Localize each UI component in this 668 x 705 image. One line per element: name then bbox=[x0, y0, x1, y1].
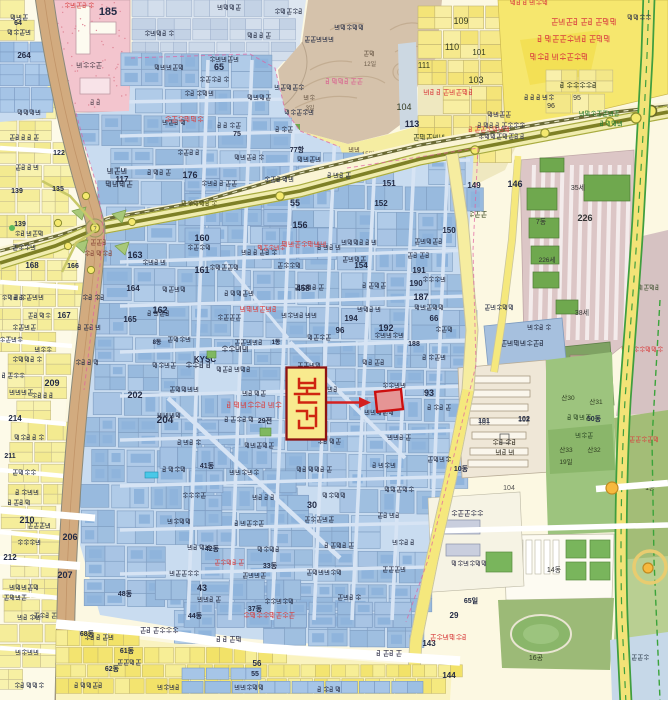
svg-text:48동: 48동 bbox=[118, 590, 133, 598]
svg-text:29전: 29전 bbox=[258, 416, 272, 425]
svg-text:93: 93 bbox=[424, 388, 434, 398]
svg-text:188: 188 bbox=[408, 341, 420, 348]
svg-text:55: 55 bbox=[290, 198, 300, 208]
svg-text:166: 166 bbox=[67, 263, 79, 270]
svg-text:35세: 35세 bbox=[571, 183, 585, 192]
svg-text:62동: 62동 bbox=[105, 665, 120, 673]
svg-text:77항: 77항 bbox=[290, 145, 305, 154]
svg-text:122: 122 bbox=[53, 150, 65, 157]
svg-text:264: 264 bbox=[17, 51, 31, 60]
svg-text:144: 144 bbox=[442, 671, 456, 680]
svg-text:104: 104 bbox=[503, 485, 515, 492]
svg-text:75: 75 bbox=[233, 131, 241, 138]
svg-text:33동: 33동 bbox=[263, 562, 278, 570]
svg-text:102: 102 bbox=[518, 416, 530, 423]
svg-text:55: 55 bbox=[251, 671, 259, 678]
svg-text:187: 187 bbox=[413, 292, 428, 302]
svg-text:202: 202 bbox=[127, 390, 142, 400]
svg-text:164: 164 bbox=[126, 284, 140, 293]
svg-text:226: 226 bbox=[577, 213, 592, 223]
svg-text:산30: 산30 bbox=[561, 393, 575, 402]
svg-text:64: 64 bbox=[14, 20, 22, 27]
svg-text:139: 139 bbox=[11, 188, 23, 195]
svg-text:204: 204 bbox=[157, 415, 174, 426]
svg-text:111: 111 bbox=[418, 61, 431, 70]
svg-text:206: 206 bbox=[62, 532, 77, 542]
svg-text:44동: 44동 bbox=[188, 612, 203, 620]
svg-text:산33: 산33 bbox=[559, 445, 573, 454]
svg-text:150: 150 bbox=[442, 226, 456, 235]
svg-text:211: 211 bbox=[4, 453, 15, 460]
svg-text:165: 165 bbox=[123, 315, 137, 324]
svg-text:185: 185 bbox=[99, 6, 117, 18]
svg-text:56: 56 bbox=[253, 659, 262, 668]
svg-text:50동: 50동 bbox=[587, 415, 602, 423]
svg-text:160: 160 bbox=[194, 233, 209, 243]
svg-text:109: 109 bbox=[453, 16, 468, 26]
svg-text:191: 191 bbox=[412, 266, 426, 275]
svg-text:146: 146 bbox=[507, 179, 522, 189]
svg-text:113: 113 bbox=[405, 119, 420, 129]
svg-text:149: 149 bbox=[467, 181, 481, 190]
svg-text:65일: 65일 bbox=[464, 596, 478, 605]
svg-text:194: 194 bbox=[344, 314, 358, 323]
svg-text:152: 152 bbox=[374, 199, 388, 208]
svg-text:66: 66 bbox=[430, 314, 439, 323]
svg-text:29: 29 bbox=[450, 611, 459, 620]
svg-text:192: 192 bbox=[378, 323, 393, 333]
svg-text:161: 161 bbox=[194, 265, 209, 275]
svg-text:12일: 12일 bbox=[364, 60, 376, 68]
svg-text:156: 156 bbox=[292, 220, 307, 230]
svg-text:30: 30 bbox=[307, 500, 317, 510]
svg-text:10동: 10동 bbox=[454, 465, 469, 473]
svg-text:214: 214 bbox=[8, 414, 22, 423]
svg-text:산32: 산32 bbox=[587, 445, 601, 454]
svg-text:139: 139 bbox=[14, 221, 26, 228]
svg-text:16공: 16공 bbox=[529, 654, 544, 662]
svg-text:61동: 61동 bbox=[120, 647, 135, 655]
svg-text:65: 65 bbox=[214, 62, 224, 72]
svg-text:110: 110 bbox=[445, 42, 459, 52]
svg-text:117: 117 bbox=[116, 175, 129, 184]
svg-text:95: 95 bbox=[573, 95, 581, 102]
svg-text:135: 135 bbox=[52, 186, 64, 193]
svg-text:43: 43 bbox=[197, 583, 207, 593]
svg-text:1동: 1동 bbox=[272, 338, 281, 346]
svg-text:14동: 14동 bbox=[547, 566, 562, 574]
svg-text:226세: 226세 bbox=[539, 255, 556, 264]
svg-text:168: 168 bbox=[25, 261, 39, 270]
svg-text:101: 101 bbox=[472, 48, 486, 57]
svg-text:207: 207 bbox=[57, 570, 72, 580]
svg-text:209: 209 bbox=[44, 378, 59, 388]
svg-text:41동: 41동 bbox=[200, 462, 215, 470]
svg-text:산31: 산31 bbox=[589, 397, 603, 406]
svg-text:167: 167 bbox=[57, 311, 71, 320]
svg-text:210: 210 bbox=[19, 515, 34, 525]
svg-text:96: 96 bbox=[547, 103, 555, 110]
svg-text:176: 176 bbox=[182, 170, 197, 180]
svg-text:96: 96 bbox=[336, 326, 345, 335]
svg-text:37동: 37동 bbox=[248, 605, 263, 613]
svg-text:154: 154 bbox=[354, 261, 368, 270]
svg-text:163: 163 bbox=[127, 250, 142, 260]
svg-text:101: 101 bbox=[478, 418, 490, 425]
svg-text:104: 104 bbox=[396, 102, 411, 112]
svg-text:8동: 8동 bbox=[153, 338, 162, 346]
svg-text:151: 151 bbox=[382, 179, 396, 188]
svg-text:212: 212 bbox=[3, 553, 17, 562]
svg-text:19일: 19일 bbox=[559, 457, 572, 466]
svg-text:7동: 7동 bbox=[536, 218, 547, 226]
svg-text:38세: 38세 bbox=[575, 308, 589, 317]
svg-text:190: 190 bbox=[409, 279, 423, 288]
svg-text:103: 103 bbox=[468, 75, 483, 85]
